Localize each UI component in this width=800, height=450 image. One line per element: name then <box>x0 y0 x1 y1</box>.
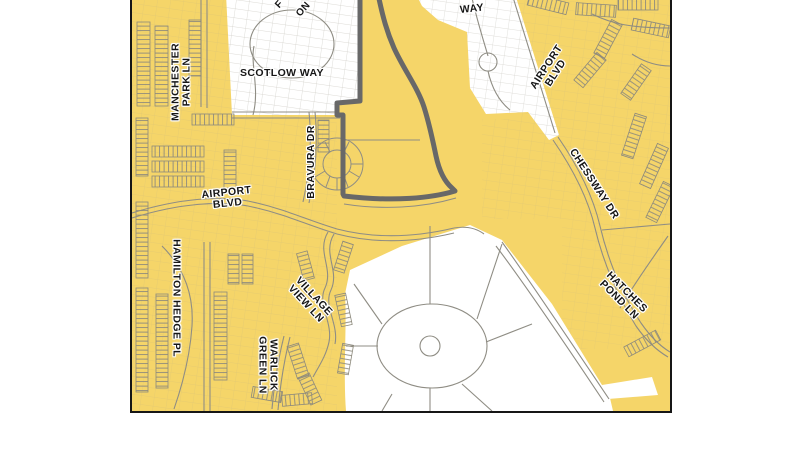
street-label-way: WAY <box>459 3 484 16</box>
zoning-map-page: MANCHESTER PARK LN SCOTLOW WAY F ON WAY … <box>0 0 800 450</box>
label-line: GREEN LN <box>258 336 269 393</box>
street-label-warlick-green-ln: WARLICK GREEN LN <box>258 336 279 393</box>
label-line: MANCHESTER <box>171 43 182 121</box>
map-frame: MANCHESTER PARK LN SCOTLOW WAY F ON WAY … <box>130 0 672 413</box>
label-line: WARLICK <box>268 336 279 393</box>
street-label-hamilton-hedge-pl: HAMILTON HEDGE PL <box>171 239 182 357</box>
street-label-manchester-park-ln: MANCHESTER PARK LN <box>171 43 192 121</box>
street-label-bravura-dr: BRAVURA DR <box>306 125 317 198</box>
label-line: PARK LN <box>181 43 192 121</box>
street-label-scotlow-way: SCOTLOW WAY <box>240 68 324 79</box>
